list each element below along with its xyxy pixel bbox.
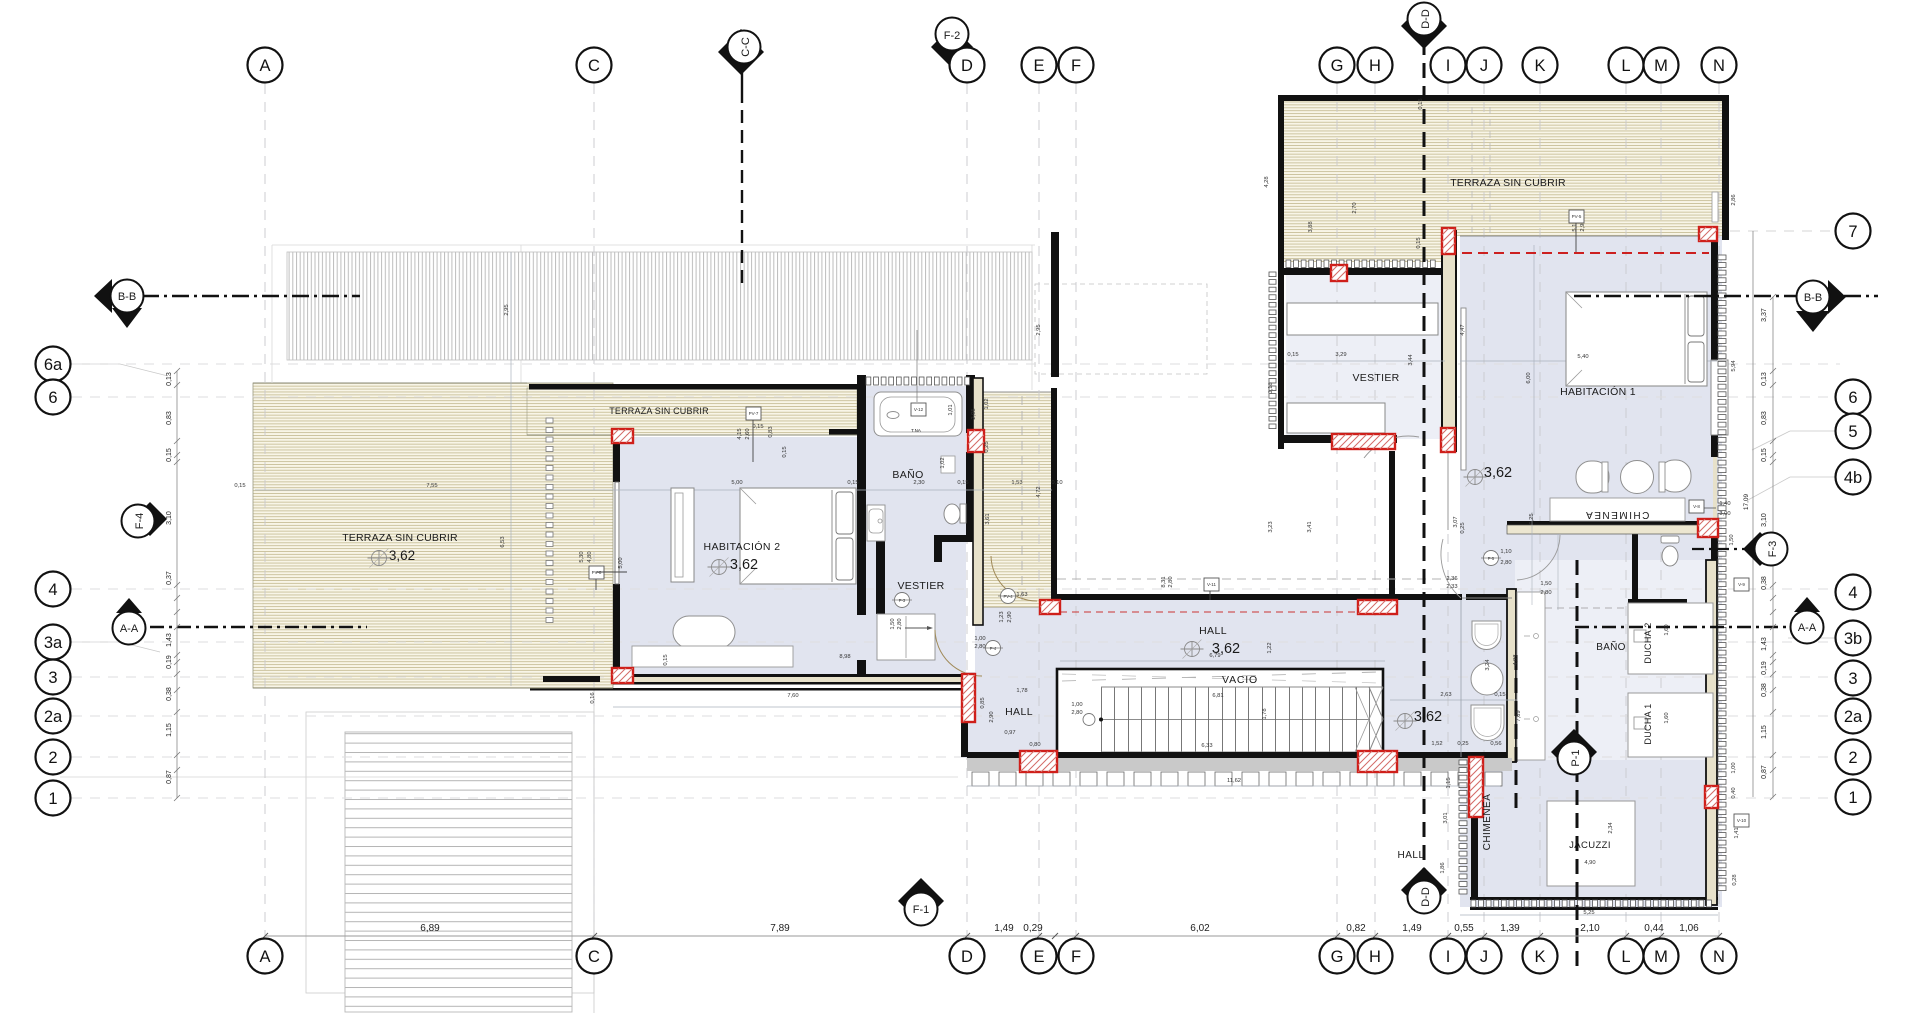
svg-text:A-A: A-A <box>120 623 139 635</box>
svg-text:DUCHA 2: DUCHA 2 <box>1643 622 1653 663</box>
svg-text:1: 1 <box>1848 789 1857 807</box>
svg-text:4,15: 4,15 <box>737 428 743 439</box>
svg-text:0,15: 0,15 <box>1761 448 1768 462</box>
svg-text:8,98: 8,98 <box>839 654 850 660</box>
svg-text:0,44: 0,44 <box>1644 923 1664 934</box>
svg-text:0,10: 0,10 <box>1051 480 1062 486</box>
svg-text:3,44: 3,44 <box>1408 354 1414 366</box>
svg-text:1,52: 1,52 <box>1431 741 1442 747</box>
svg-text:PV-7: PV-7 <box>749 411 759 416</box>
svg-text:F-4: F-4 <box>134 513 146 530</box>
svg-text:3,01: 3,01 <box>1443 812 1449 823</box>
svg-text:0,16: 0,16 <box>590 692 596 703</box>
svg-text:1,78: 1,78 <box>1262 708 1268 719</box>
svg-text:1,39: 1,39 <box>1500 923 1520 934</box>
svg-text:TERRAZA SIN CUBRIR: TERRAZA SIN CUBRIR <box>342 532 458 544</box>
svg-text:2,86: 2,86 <box>1731 194 1737 205</box>
svg-text:E: E <box>1033 57 1044 75</box>
svg-text:H: H <box>1369 948 1381 966</box>
svg-text:T.NA: T.NA <box>911 428 921 433</box>
svg-text:VESTIER: VESTIER <box>897 580 944 592</box>
svg-text:3a: 3a <box>44 634 63 652</box>
svg-text:3,41: 3,41 <box>1307 521 1313 532</box>
svg-text:17,09: 17,09 <box>1743 493 1750 510</box>
svg-text:1,00: 1,00 <box>1071 702 1082 708</box>
svg-text:0,56: 0,56 <box>1490 741 1501 747</box>
svg-text:1,15: 1,15 <box>1446 777 1452 788</box>
svg-text:2,80: 2,80 <box>1500 560 1511 566</box>
svg-text:6a: 6a <box>44 356 63 374</box>
svg-text:7,89: 7,89 <box>770 923 790 934</box>
svg-text:5: 5 <box>1848 423 1857 441</box>
svg-text:1,10: 1,10 <box>1500 549 1511 555</box>
svg-text:2,70: 2,70 <box>1352 202 1358 213</box>
svg-text:0,15: 0,15 <box>663 654 669 665</box>
svg-text:1,02: 1,02 <box>984 398 990 409</box>
svg-text:JACUZZI: JACUZZI <box>1569 840 1611 851</box>
svg-text:2,34: 2,34 <box>1608 822 1614 834</box>
svg-text:2,33: 2,33 <box>1446 584 1457 590</box>
svg-text:0,29: 0,29 <box>1023 923 1043 934</box>
svg-text:2,05: 2,05 <box>971 408 977 419</box>
svg-text:0,15: 0,15 <box>1494 692 1505 698</box>
svg-text:7,55: 7,55 <box>426 483 437 489</box>
svg-text:7,60: 7,60 <box>787 693 798 699</box>
svg-text:HABITACIÓN 1: HABITACIÓN 1 <box>1560 385 1636 398</box>
svg-text:BAÑO: BAÑO <box>892 468 923 481</box>
svg-text:0,15: 0,15 <box>234 483 245 489</box>
svg-text:4,83: 4,83 <box>1513 654 1519 665</box>
svg-text:1,15: 1,15 <box>1761 725 1768 739</box>
svg-text:J: J <box>1480 948 1488 966</box>
svg-text:1,43: 1,43 <box>1761 637 1768 651</box>
svg-text:1,02: 1,02 <box>940 457 946 468</box>
svg-text:5,00: 5,00 <box>731 480 742 486</box>
svg-text:5,30: 5,30 <box>579 551 585 562</box>
svg-text:HALL: HALL <box>1397 850 1424 861</box>
svg-text:1,41: 1,41 <box>1734 827 1740 838</box>
svg-text:F-1: F-1 <box>913 904 930 916</box>
svg-text:1,50: 1,50 <box>1729 534 1735 545</box>
svg-text:0,87: 0,87 <box>166 770 173 784</box>
svg-text:TERRAZA SIN CUBRIR: TERRAZA SIN CUBRIR <box>1450 177 1566 189</box>
svg-text:6,81: 6,81 <box>1212 693 1223 699</box>
svg-text:4,72: 4,72 <box>1036 486 1042 497</box>
svg-text:0,40: 0,40 <box>1731 787 1737 798</box>
svg-text:0,15: 0,15 <box>752 424 763 430</box>
svg-text:N: N <box>1713 948 1725 966</box>
svg-text:1: 1 <box>48 790 57 808</box>
svg-text:0,97: 0,97 <box>1004 730 1015 736</box>
svg-text:0,13: 0,13 <box>166 372 173 386</box>
svg-text:3,10: 3,10 <box>166 511 173 525</box>
svg-text:N: N <box>1713 57 1725 75</box>
svg-text:2a: 2a <box>1844 708 1863 726</box>
svg-text:2,90: 2,90 <box>1007 611 1013 622</box>
svg-text:1,60: 1,60 <box>1664 712 1670 723</box>
svg-text:K: K <box>1534 948 1545 966</box>
svg-text:P-5: P-5 <box>1488 556 1495 561</box>
svg-text:3,29: 3,29 <box>1335 352 1346 358</box>
svg-text:HALL: HALL <box>1199 625 1227 637</box>
svg-text:0,15: 0,15 <box>1416 237 1422 248</box>
svg-text:3,62: 3,62 <box>1212 641 1240 657</box>
svg-text:2,80: 2,80 <box>1168 576 1174 587</box>
svg-text:PV-4: PV-4 <box>1003 594 1013 599</box>
svg-text:D-D: D-D <box>1420 9 1432 29</box>
svg-text:6: 6 <box>1848 389 1857 407</box>
svg-text:V-10: V-10 <box>1737 818 1747 823</box>
svg-text:0,25: 0,25 <box>1457 741 1468 747</box>
svg-text:0,15: 0,15 <box>1418 98 1424 109</box>
svg-text:0,19: 0,19 <box>1761 661 1768 675</box>
svg-text:0,15: 0,15 <box>847 480 858 486</box>
svg-text:8,31: 8,31 <box>1161 576 1167 587</box>
svg-text:F-2: F-2 <box>944 30 961 42</box>
svg-text:F: F <box>1071 948 1081 966</box>
svg-text:4,28: 4,28 <box>1264 176 1270 187</box>
svg-text:0,38: 0,38 <box>1761 683 1768 697</box>
svg-text:C: C <box>588 948 600 966</box>
svg-text:D: D <box>961 948 973 966</box>
svg-text:3,07: 3,07 <box>1453 516 1459 527</box>
svg-text:2,80: 2,80 <box>1540 590 1551 596</box>
svg-text:A: A <box>259 948 270 966</box>
svg-text:F-3: F-3 <box>1767 541 1779 558</box>
svg-text:2,95: 2,95 <box>1036 324 1042 335</box>
svg-text:M: M <box>1654 948 1668 966</box>
svg-text:H: H <box>1369 57 1381 75</box>
svg-text:1,23: 1,23 <box>999 611 1005 622</box>
svg-text:2,36: 2,36 <box>1446 576 1457 582</box>
svg-text:F: F <box>1071 57 1081 75</box>
svg-text:6,33: 6,33 <box>1201 743 1212 749</box>
svg-text:3,18: 3,18 <box>1268 382 1274 393</box>
svg-text:1,43: 1,43 <box>166 633 173 647</box>
svg-text:0,25: 0,25 <box>1529 513 1535 524</box>
svg-text:3,61: 3,61 <box>985 513 991 524</box>
svg-text:1,63: 1,63 <box>1016 592 1027 598</box>
svg-text:V-9: V-9 <box>1738 582 1745 587</box>
svg-text:0,37: 0,37 <box>166 571 173 585</box>
svg-text:K: K <box>1534 57 1545 75</box>
svg-text:2: 2 <box>1848 749 1857 767</box>
svg-text:3,62: 3,62 <box>1484 465 1512 481</box>
svg-text:4,80: 4,80 <box>587 551 593 562</box>
svg-text:B-B: B-B <box>1804 292 1822 304</box>
svg-text:3,00: 3,00 <box>1719 511 1730 517</box>
svg-text:0,38: 0,38 <box>1761 576 1768 590</box>
svg-text:6,02: 6,02 <box>1190 923 1210 934</box>
svg-text:TERRAZA SIN CUBRIR: TERRAZA SIN CUBRIR <box>609 406 709 416</box>
svg-text:VESTIER: VESTIER <box>1352 372 1399 384</box>
svg-text:5,94: 5,94 <box>1731 360 1737 372</box>
svg-text:4: 4 <box>1848 584 1857 602</box>
svg-text:2,95: 2,95 <box>504 304 510 315</box>
svg-text:M: M <box>1654 57 1668 75</box>
svg-text:11,62: 11,62 <box>1227 778 1241 784</box>
svg-text:3,23: 3,23 <box>1268 521 1274 532</box>
svg-text:3: 3 <box>1848 670 1857 688</box>
svg-text:V-8: V-8 <box>1693 504 1700 509</box>
svg-text:1,49: 1,49 <box>994 923 1014 934</box>
svg-text:0,19: 0,19 <box>166 655 173 669</box>
svg-text:3b: 3b <box>1844 630 1862 648</box>
svg-text:5,40: 5,40 <box>1577 354 1588 360</box>
svg-text:0,83: 0,83 <box>768 426 774 437</box>
svg-text:D-D: D-D <box>1420 887 1432 907</box>
svg-text:CHIMENEA: CHIMENEA <box>1482 794 1493 851</box>
svg-text:0,83: 0,83 <box>1761 411 1768 425</box>
svg-text:0,15: 0,15 <box>1287 352 1298 358</box>
svg-text:2,10: 2,10 <box>1580 923 1600 934</box>
svg-text:4b: 4b <box>1844 469 1862 487</box>
svg-text:0,82: 0,82 <box>1346 923 1366 934</box>
svg-text:P-3: P-3 <box>899 598 906 603</box>
svg-text:3,10: 3,10 <box>1761 513 1768 527</box>
svg-text:1,00: 1,00 <box>974 636 985 642</box>
svg-text:L: L <box>1621 57 1630 75</box>
svg-text:HALL: HALL <box>1005 706 1033 718</box>
svg-text:B-B: B-B <box>118 291 136 303</box>
svg-text:BAÑO: BAÑO <box>1596 640 1626 653</box>
svg-text:VACIO: VACIO <box>1222 674 1258 686</box>
svg-text:3,62: 3,62 <box>389 548 415 563</box>
svg-text:3: 3 <box>48 669 57 687</box>
svg-text:C: C <box>588 57 600 75</box>
svg-text:0,38: 0,38 <box>166 687 173 701</box>
svg-text:1,06: 1,06 <box>1679 923 1699 934</box>
svg-text:0,15: 0,15 <box>782 446 788 457</box>
svg-text:P-4: P-4 <box>990 646 997 651</box>
svg-text:5,25: 5,25 <box>1583 910 1594 916</box>
svg-text:G: G <box>1331 948 1344 966</box>
svg-text:D: D <box>961 57 973 75</box>
svg-text:G: G <box>1331 57 1344 75</box>
svg-text:0,25: 0,25 <box>1460 522 1466 533</box>
svg-text:HABITACIÓN 2: HABITACIÓN 2 <box>704 540 781 553</box>
svg-text:PV-5: PV-5 <box>1572 214 1582 219</box>
svg-text:3,62: 3,62 <box>1414 709 1442 725</box>
svg-text:0,15: 0,15 <box>166 448 173 462</box>
svg-text:3,62: 3,62 <box>730 557 758 573</box>
svg-text:2,80: 2,80 <box>974 644 985 650</box>
svg-text:1,60: 1,60 <box>1664 624 1670 635</box>
svg-text:0,13: 0,13 <box>1761 372 1768 386</box>
svg-text:2,80: 2,80 <box>897 618 903 629</box>
svg-text:1,50: 1,50 <box>1540 581 1551 587</box>
svg-text:J: J <box>1480 57 1488 75</box>
svg-text:0,25: 0,25 <box>984 441 990 452</box>
svg-text:CHIMENEA: CHIMENEA <box>1585 509 1650 520</box>
svg-text:V-12: V-12 <box>914 407 924 412</box>
svg-text:I: I <box>1446 948 1451 966</box>
svg-text:3,88: 3,88 <box>1308 221 1314 232</box>
svg-text:2,90: 2,90 <box>989 711 995 722</box>
svg-text:PV-8: PV-8 <box>592 570 602 575</box>
svg-text:3,37: 3,37 <box>1761 308 1768 322</box>
svg-text:4: 4 <box>48 581 57 599</box>
svg-text:1,78: 1,78 <box>1016 688 1027 694</box>
svg-text:2,60: 2,60 <box>745 428 751 439</box>
svg-text:2,80: 2,80 <box>1071 710 1082 716</box>
svg-text:1,22: 1,22 <box>1267 642 1273 653</box>
svg-text:6,00: 6,00 <box>1526 372 1532 383</box>
svg-text:DUCHA 1: DUCHA 1 <box>1643 703 1653 744</box>
svg-text:V-11: V-11 <box>1207 582 1216 587</box>
svg-text:C-C: C-C <box>740 37 752 57</box>
svg-text:1,01: 1,01 <box>948 404 954 415</box>
svg-text:P-1: P-1 <box>1570 749 1582 766</box>
svg-text:I: I <box>1446 57 1451 75</box>
svg-text:7,69: 7,69 <box>1516 710 1522 721</box>
svg-text:0,80: 0,80 <box>1029 742 1040 748</box>
svg-text:1,40: 1,40 <box>1719 501 1730 507</box>
svg-text:6,53: 6,53 <box>500 536 506 547</box>
svg-text:4,90: 4,90 <box>1584 860 1595 866</box>
svg-text:7: 7 <box>1848 223 1857 241</box>
svg-text:0,28: 0,28 <box>1732 874 1738 885</box>
svg-text:0,83: 0,83 <box>166 411 173 425</box>
svg-text:1,00: 1,00 <box>1731 762 1737 773</box>
svg-text:0,55: 0,55 <box>1454 923 1474 934</box>
svg-text:5,00: 5,00 <box>618 557 624 568</box>
svg-text:1,49: 1,49 <box>1402 923 1422 934</box>
svg-text:1,50: 1,50 <box>890 618 896 629</box>
svg-text:A-A: A-A <box>1798 622 1817 634</box>
svg-text:2: 2 <box>48 749 57 767</box>
svg-text:0,87: 0,87 <box>1761 765 1768 779</box>
svg-text:3,24: 3,24 <box>1485 659 1491 671</box>
svg-text:E: E <box>1033 948 1044 966</box>
svg-text:0,85: 0,85 <box>980 697 986 708</box>
svg-text:1,53: 1,53 <box>1011 480 1022 486</box>
svg-text:6,89: 6,89 <box>420 923 440 934</box>
svg-text:6: 6 <box>48 389 57 407</box>
svg-text:2,63: 2,63 <box>1440 692 1451 698</box>
svg-text:L: L <box>1621 948 1630 966</box>
svg-text:A: A <box>259 57 270 75</box>
svg-text:0,15: 0,15 <box>957 480 968 486</box>
svg-text:1,86: 1,86 <box>1440 862 1446 873</box>
svg-text:4,47: 4,47 <box>1460 324 1466 335</box>
svg-text:2a: 2a <box>44 708 63 726</box>
svg-text:1,15: 1,15 <box>166 723 173 737</box>
